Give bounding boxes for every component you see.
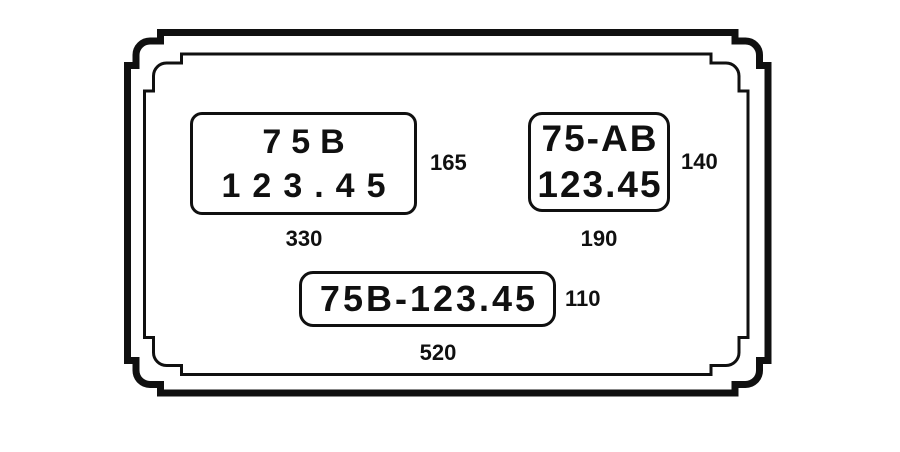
height-dimension-label: 140 — [681, 149, 718, 175]
plate-text-line: 75-AB — [540, 116, 659, 162]
height-dimension-label: 110 — [565, 286, 601, 312]
plate-text-line: 123.45 — [210, 164, 398, 208]
license-plate-two-line-small: 75-AB 123.45 — [528, 112, 670, 212]
license-plate-two-line-large: 75B 123.45 — [190, 112, 417, 215]
decorative-double-frame — [0, 0, 900, 452]
plate-text-line: 75B-123.45 — [317, 279, 538, 319]
height-dimension-label: 165 — [430, 150, 467, 176]
width-dimension-label: 520 — [420, 340, 457, 366]
width-dimension-label: 330 — [286, 226, 323, 252]
plate-text-line: 123.45 — [535, 162, 662, 208]
width-dimension-label: 190 — [581, 226, 618, 252]
license-plate-single-line: 75B-123.45 — [299, 271, 556, 327]
plate-size-diagram: 75B 123.45 165 330 75-AB 123.45 140 190 … — [0, 0, 900, 452]
plate-text-line: 75B — [252, 120, 354, 164]
